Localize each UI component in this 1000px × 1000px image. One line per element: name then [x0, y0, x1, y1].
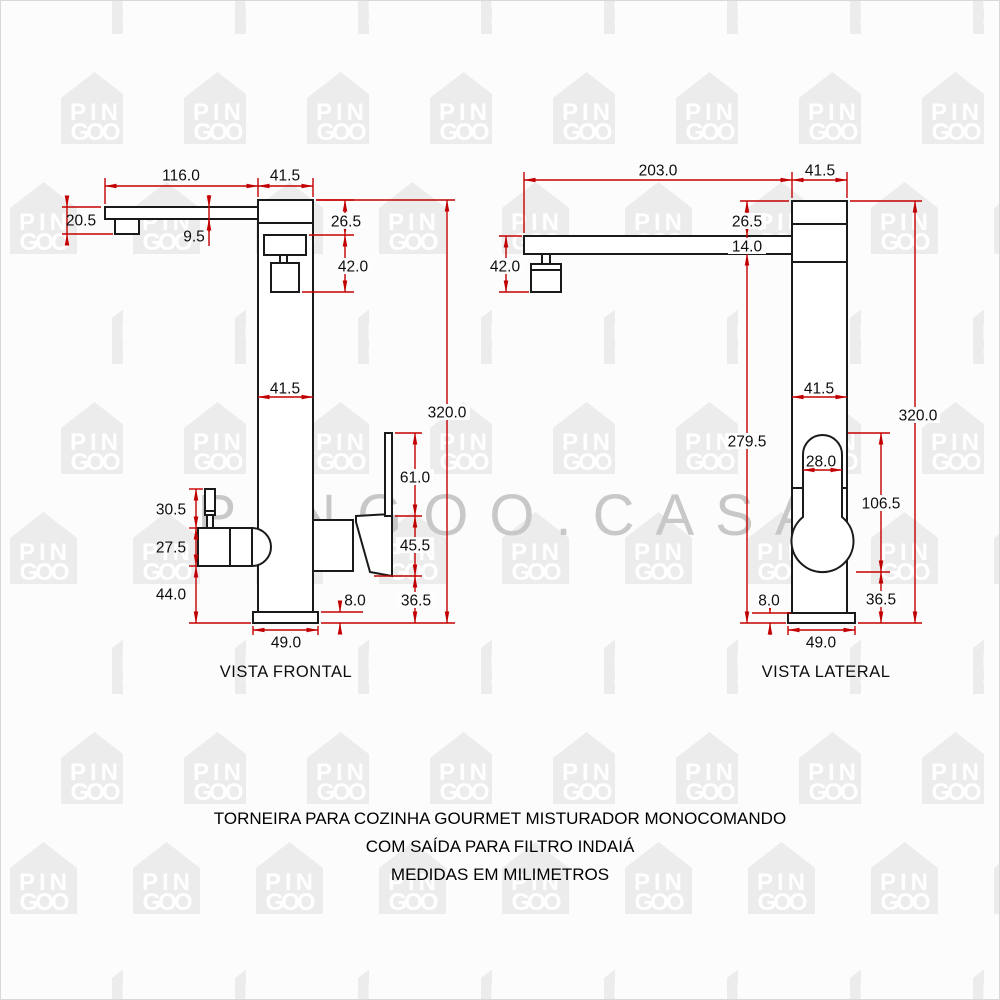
front-outlet-spray [271, 263, 299, 292]
caption-line-3: MEDIDAS EM MILIMETROS [391, 865, 609, 884]
front-base-flange [253, 612, 318, 623]
dim-side-body-depth: 41.5 [805, 162, 835, 179]
front-outlet-panel [264, 235, 306, 255]
front-handle-lever [385, 433, 392, 516]
dim-side-handle-assembly-height: 106.5 [862, 495, 901, 512]
dim-side-handle-width: 28.0 [806, 453, 837, 470]
front-spout-aerator [115, 219, 139, 234]
side-base-flange [788, 613, 855, 623]
dim-front-base-width: 49.0 [271, 634, 302, 651]
dim-front-top-section: 26.5 [331, 213, 361, 230]
dim-front-lever-height: 61.0 [400, 469, 431, 486]
side-aerator [531, 264, 561, 292]
dim-side-total-height: 320.0 [899, 407, 938, 424]
caption-line-1: TORNEIRA PARA COZINHA GOURMET MISTURADOR… [214, 809, 786, 828]
dim-side-spout-reach: 203.0 [639, 162, 678, 179]
dim-side-body-depth-mid: 41.5 [804, 380, 834, 397]
dim-front-total-height: 320.0 [428, 404, 467, 421]
dim-front-body-width-mid: 41.5 [270, 380, 300, 397]
front-filter-valve-neck [207, 515, 213, 528]
dim-side-base-height: 8.0 [758, 592, 780, 609]
dim-front-body-width: 41.5 [270, 167, 300, 184]
dim-front-spout-thickness: 9.5 [183, 228, 205, 245]
front-view-title: VISTA FRONTAL [220, 663, 352, 681]
caption-line-2: COM SAÍDA PARA FILTRO INDAIÁ [366, 837, 635, 856]
technical-drawing-canvas: PIN GOO PIN GOO PIN GOO PINGOO.CASA [0, 0, 1000, 1000]
dim-side-aerator-drop: 42.0 [490, 258, 521, 275]
dim-side-spout-thickness: 14.0 [732, 238, 763, 255]
dim-front-outlet-assembly: 42.0 [338, 258, 369, 275]
front-filter-outlet-box [198, 528, 252, 566]
dim-side-base-depth: 49.0 [806, 634, 837, 651]
dim-front-outlet-to-base: 44.0 [156, 586, 187, 603]
dim-front-valve-handle-height: 30.5 [156, 501, 186, 518]
dim-front-base-height: 8.0 [344, 592, 366, 609]
dim-side-handle-to-base: 36.5 [866, 591, 896, 608]
side-aerator-pin [542, 254, 550, 264]
dim-side-top-section: 26.5 [732, 213, 762, 230]
front-spout [105, 207, 258, 219]
dim-side-below-spout-height: 279.5 [728, 433, 767, 450]
dim-front-handle-to-base: 36.5 [401, 592, 431, 609]
side-view-title: VISTA LATERAL [762, 663, 891, 681]
dim-front-spout-length: 116.0 [162, 167, 200, 184]
dim-front-handle-body-height: 45.5 [400, 537, 430, 554]
front-valve-housing [313, 520, 353, 571]
dim-front-filter-outlet-height: 27.5 [156, 539, 186, 556]
front-outlet-pin [280, 255, 287, 263]
faucet-spec-sheet: PIN GOO PIN GOO PIN GOO PINGOO.CASA [0, 0, 1000, 1000]
dim-front-spout-tip-drop: 20.5 [66, 212, 96, 229]
